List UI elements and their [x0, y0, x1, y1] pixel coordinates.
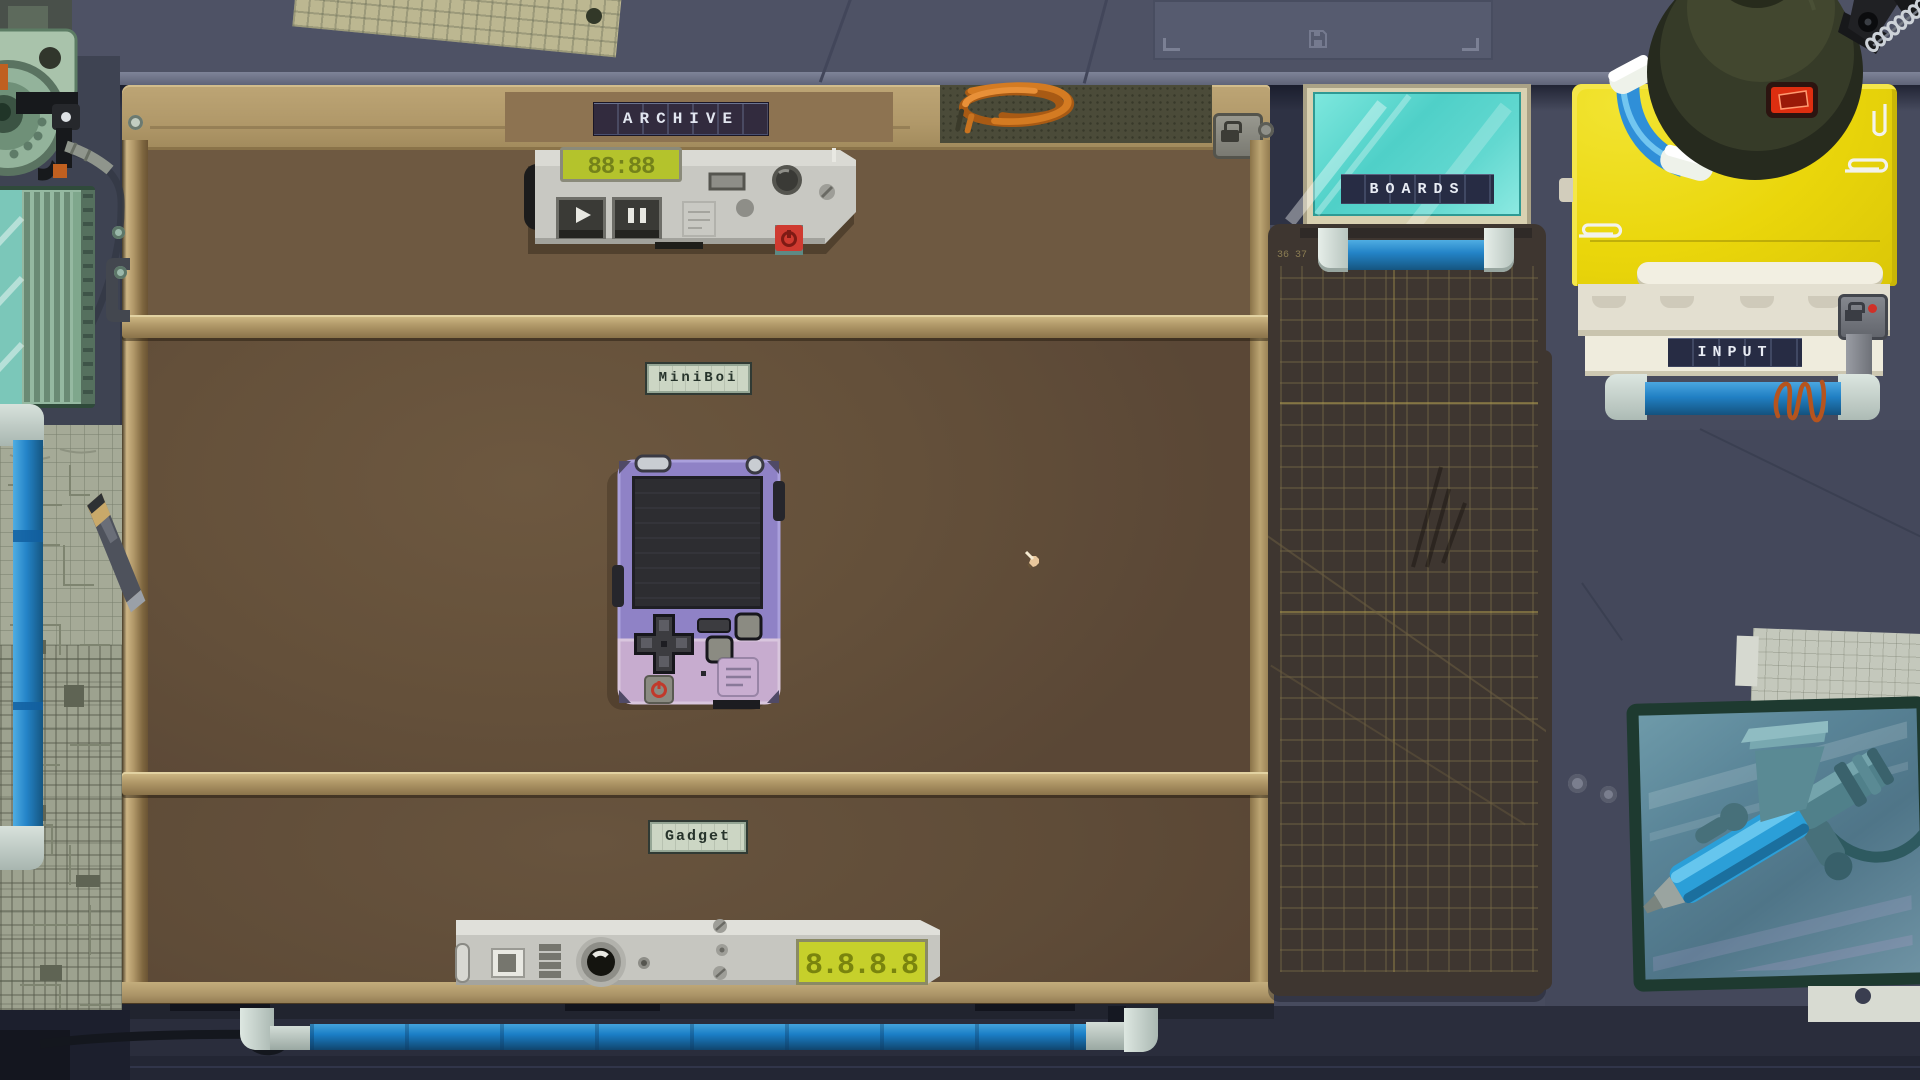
- svg-text:88:88: 88:88: [587, 154, 655, 181]
- svg-text:8.8.8.8: 8.8.8.8: [805, 949, 918, 983]
